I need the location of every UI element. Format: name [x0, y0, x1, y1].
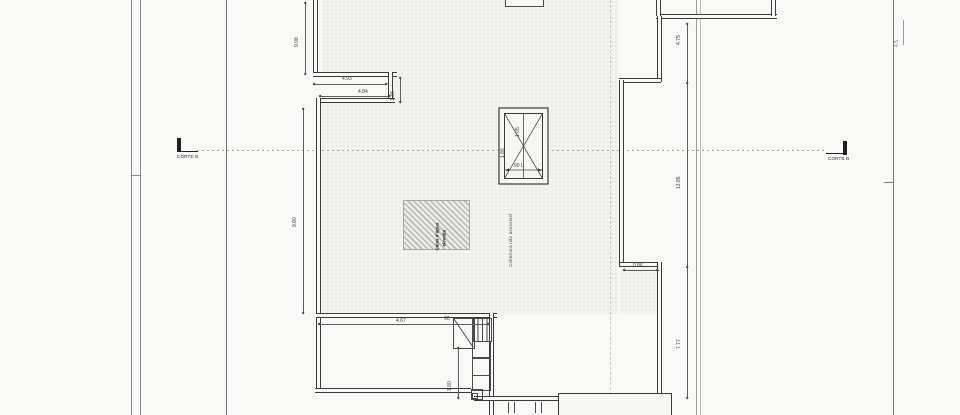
dimension-line — [313, 84, 387, 85]
wall — [771, 0, 776, 16]
dim-tick — [457, 347, 460, 350]
dimension-line — [687, 23, 688, 399]
dimension-line — [400, 77, 401, 103]
dim-label-right-bottom: 7.77 — [677, 339, 682, 349]
dim-label-right-top: 4.75 — [677, 35, 682, 45]
dim-label-notch-bottom: 4.84 — [358, 90, 368, 95]
wall — [474, 396, 558, 401]
dim-tick — [686, 82, 689, 85]
dim-label-terrace-width: 4.67 — [396, 319, 406, 324]
stair-box-corner — [472, 393, 478, 399]
dim-tick — [313, 83, 316, 86]
roof-surface-step — [620, 268, 658, 314]
stair-diagonal — [453, 318, 474, 348]
roof-area-label: Cobertura não acessível — [508, 214, 513, 267]
dim-tick — [302, 108, 305, 111]
stair-rung — [508, 402, 509, 413]
section-marker-right-bar — [843, 141, 847, 155]
dimension-line — [458, 347, 459, 399]
boundary-line-left-c — [226, 0, 227, 415]
dim-tick — [686, 23, 689, 26]
skylight-base-label: 90 L — [514, 164, 524, 169]
boundary-line-left-b — [140, 0, 141, 415]
dim-tick — [304, 73, 307, 76]
section-marker-left-line — [181, 151, 198, 152]
dim-tick — [304, 2, 307, 5]
chimney-box — [505, 0, 544, 7]
lightwell-notch — [319, 77, 389, 98]
dimension-line — [318, 324, 490, 325]
boundary-line-right-b — [700, 0, 701, 415]
stair-rung — [514, 402, 515, 413]
stair-bulkhead — [558, 393, 672, 415]
dim-tick — [686, 266, 689, 269]
boundary-tick-left — [131, 175, 141, 176]
wall — [656, 0, 661, 16]
skylight — [498, 107, 550, 186]
dim-label-notch-depth: 1.36 — [391, 91, 396, 101]
stair-rung — [535, 402, 536, 413]
boundary-line-left-a — [131, 0, 132, 415]
dimension-line — [903, 20, 904, 45]
dimension-line — [305, 2, 306, 75]
stair-rung — [541, 402, 542, 413]
wall — [316, 98, 321, 393]
boundary-line-far-right — [893, 0, 894, 415]
dimension-line — [303, 108, 304, 314]
dim-label-far-right: 4.5 — [895, 40, 900, 47]
boundary-tick-right — [884, 182, 894, 183]
dim-tick — [302, 312, 305, 315]
alignment-dashed-line — [610, 0, 611, 400]
stair-treads — [472, 318, 492, 342]
skylight-width-label: 1.05 — [516, 127, 521, 137]
section-marker-left-label: CORTE B — [177, 154, 198, 159]
section-marker-right-label: CORTE B — [828, 156, 849, 161]
water-tank-label-1: Caixa d'água — [436, 223, 441, 251]
dim-label-notch-top: 4.93 — [342, 77, 352, 82]
dim-tick — [686, 397, 689, 400]
dim-label-left-lower: 9.80 — [293, 217, 298, 227]
wall — [656, 14, 777, 19]
section-marker-left-bar — [177, 138, 181, 152]
dim-tick — [457, 397, 460, 400]
roof-surface — [322, 0, 618, 314]
roof-plan-canvas: 1.05 1.86 90 L Caixa d'água elevada Cobe… — [0, 0, 960, 415]
wall — [313, 72, 397, 77]
dim-label-step-width: 0.86 — [633, 264, 643, 269]
wall — [318, 98, 395, 103]
dim-label-stair-height: 1.80 — [448, 381, 453, 391]
wall — [619, 78, 661, 83]
wall — [657, 16, 662, 82]
dimension-line — [319, 96, 390, 97]
dimension-line — [623, 270, 659, 271]
wall — [619, 80, 624, 267]
stair-box — [472, 341, 491, 358]
dim-label-right-middle: 13.85 — [677, 176, 682, 189]
skylight-height-label: 1.86 — [501, 148, 506, 158]
boundary-line-right-a — [696, 0, 697, 415]
water-tank-label-2: elevada — [443, 230, 448, 247]
section-marker-right-line — [826, 153, 843, 154]
wall — [657, 262, 662, 400]
stair-box — [472, 358, 491, 376]
dim-label-stair-width: 90 — [444, 317, 450, 322]
wall — [313, 0, 318, 75]
dim-label-left-upper: 9.08 — [295, 37, 300, 47]
